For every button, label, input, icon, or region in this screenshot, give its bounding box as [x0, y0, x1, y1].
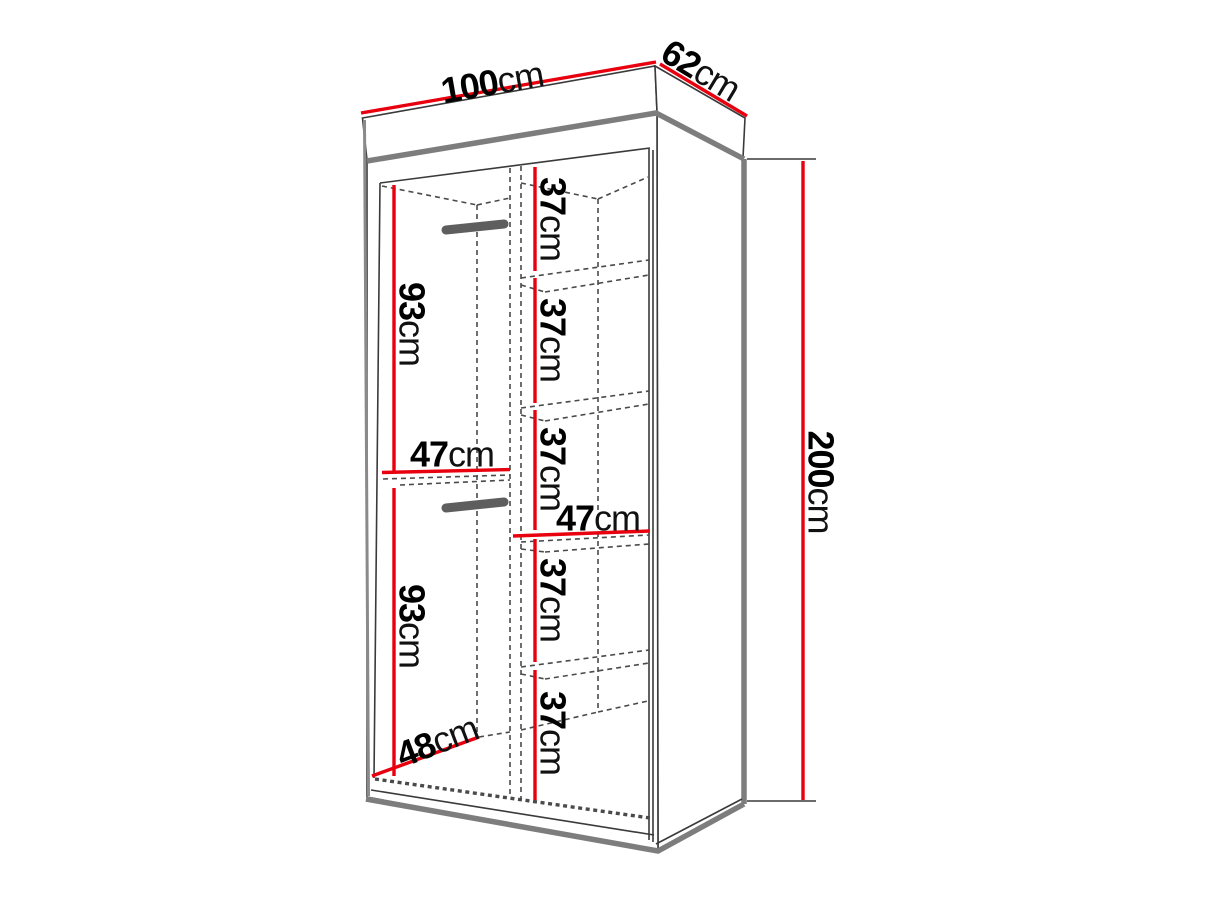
hang-top-label: 93cm — [391, 282, 432, 366]
side-panel — [657, 112, 743, 852]
height-label: 200cm — [800, 430, 841, 533]
inner-width-right-label: 47cm — [556, 498, 640, 539]
hang-bottom-label: 93cm — [391, 584, 432, 668]
diagram-canvas: 100cm 62cm 200cm 37cm 37cm 37cm 37cm 37c… — [0, 0, 1214, 910]
wardrobe-dimension-diagram: 100cm 62cm 200cm 37cm 37cm 37cm 37cm 37c… — [0, 0, 1214, 910]
hanging-rail-top — [446, 224, 504, 230]
inner-width-left-label: 47cm — [410, 434, 494, 475]
shelf-5-label: 37cm — [532, 691, 573, 775]
shelf-4-label: 37cm — [532, 558, 573, 642]
shelf-2-label: 37cm — [532, 298, 573, 382]
shelf-1-label: 37cm — [532, 177, 573, 261]
hanging-rail-bottom — [446, 502, 504, 508]
